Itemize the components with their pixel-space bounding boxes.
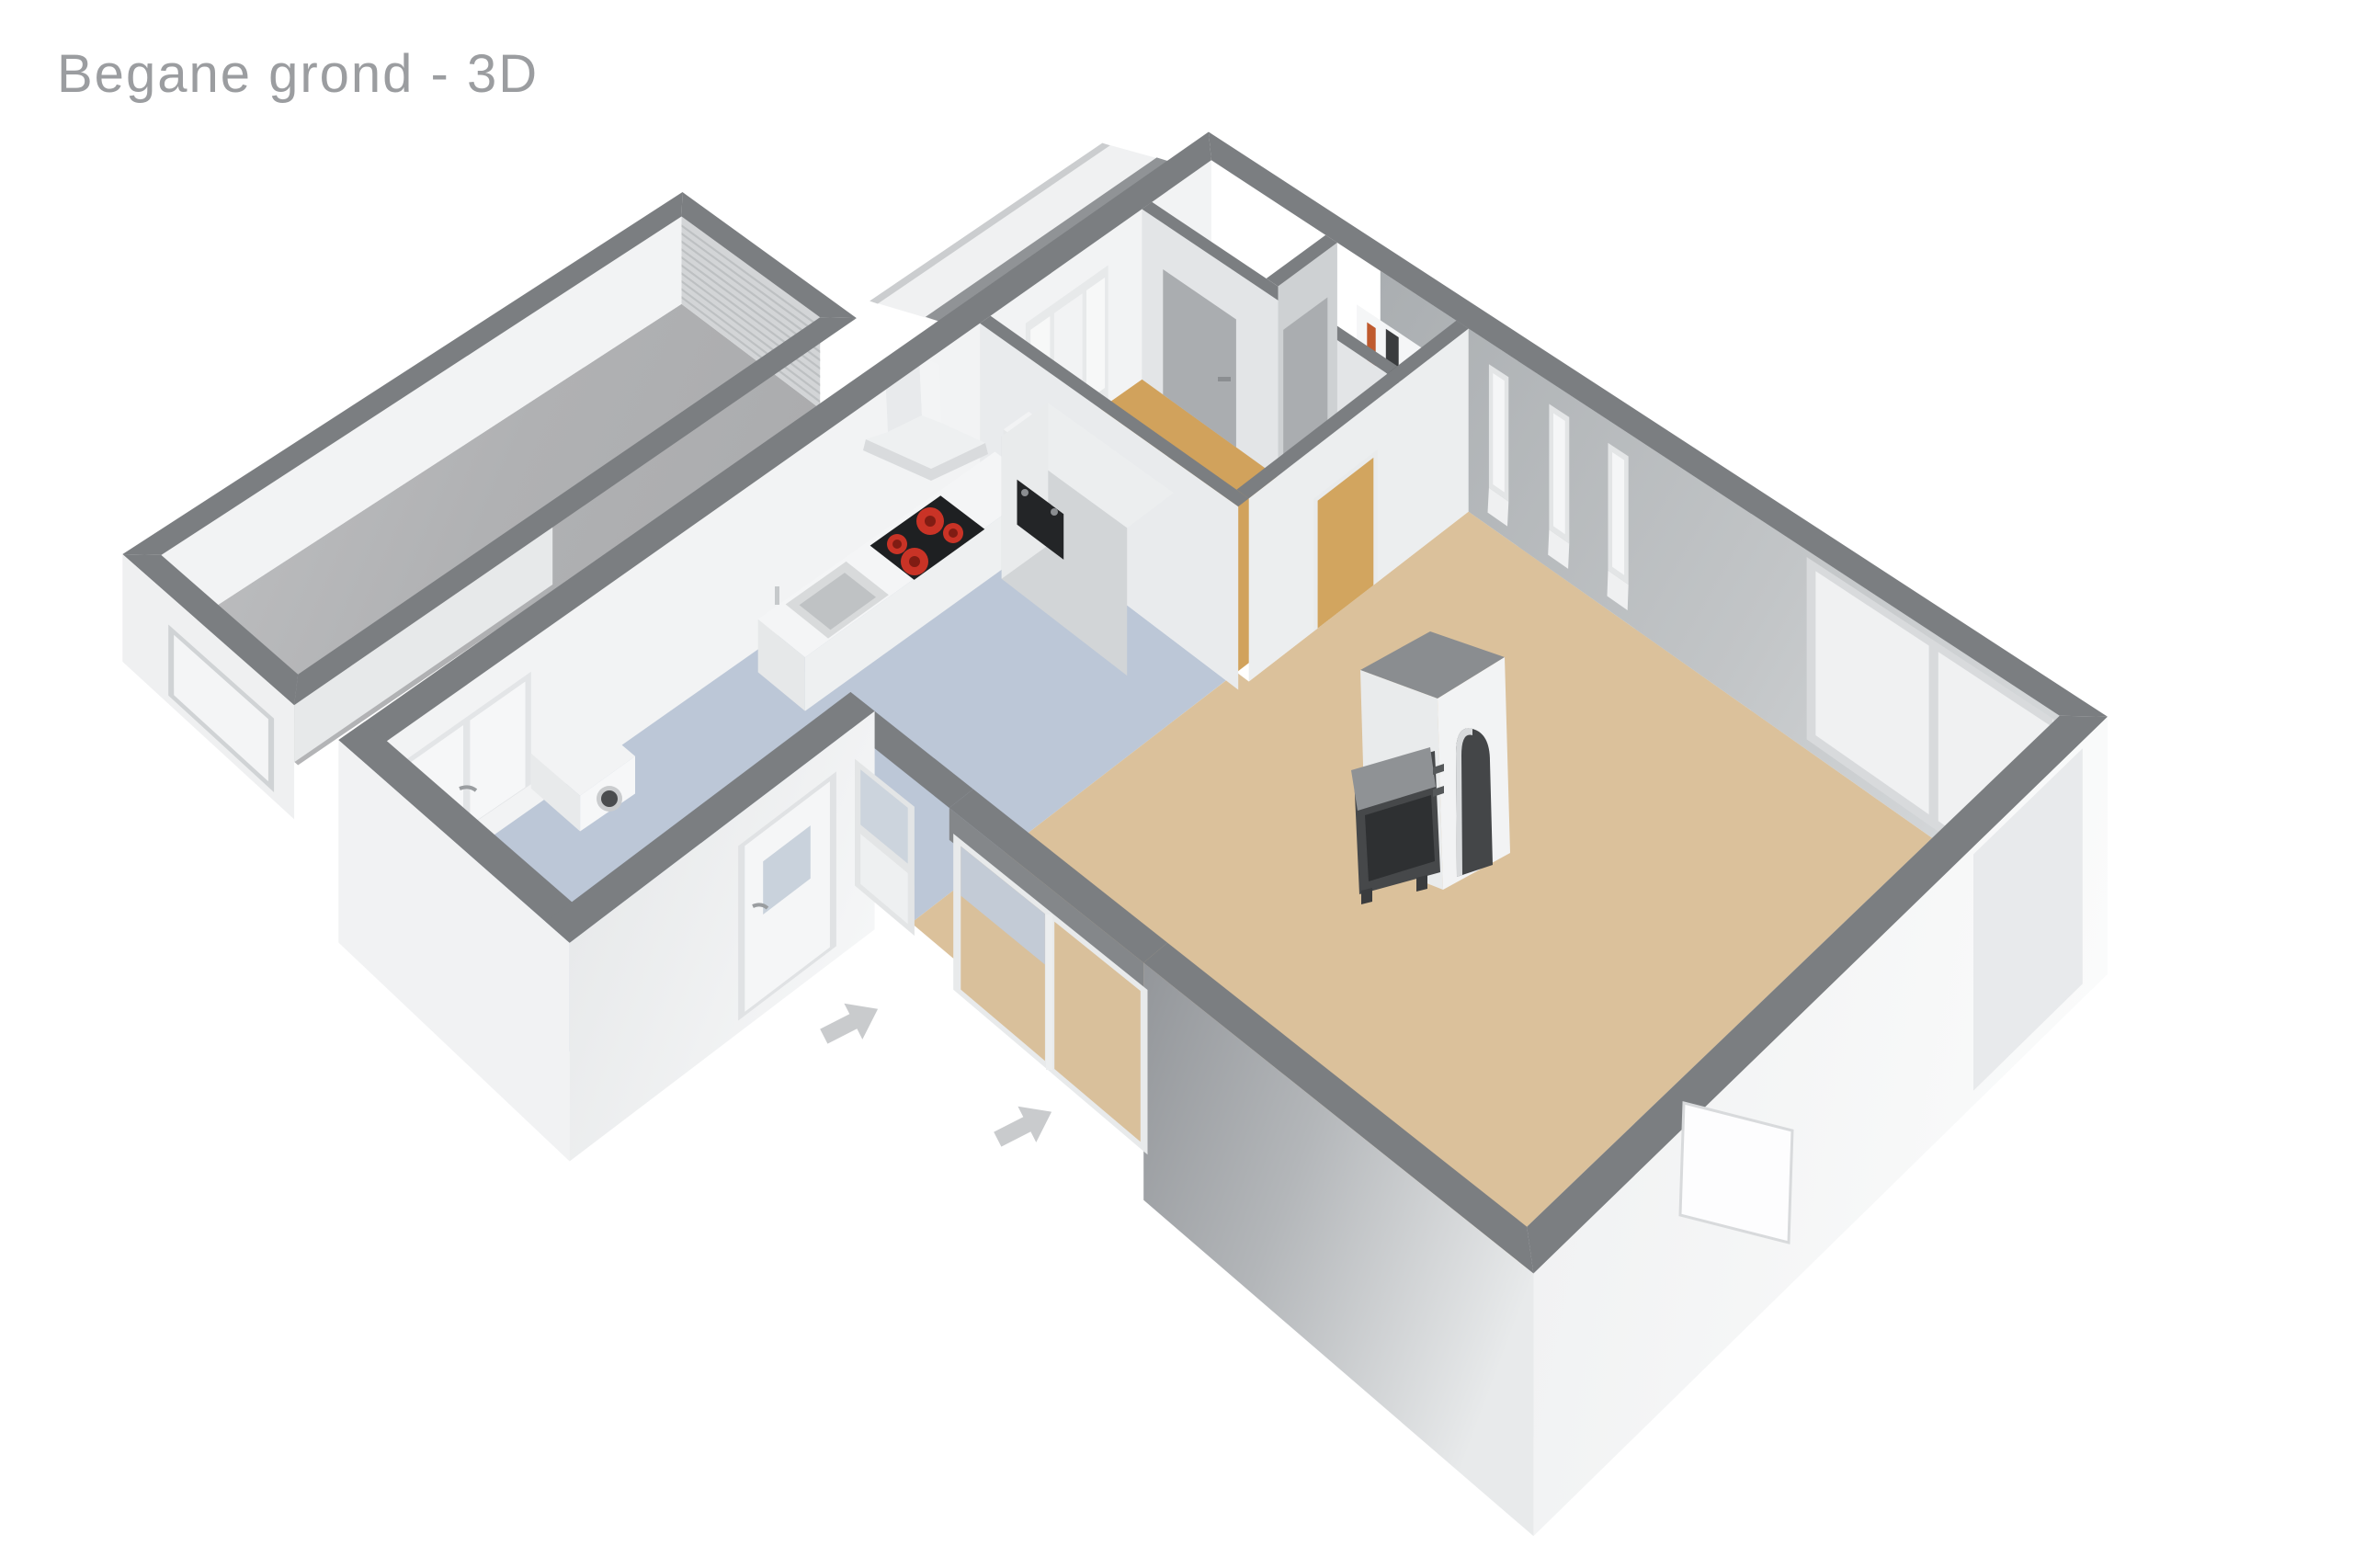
- svg-text:Begane grond - 3D: Begane grond - 3D: [57, 44, 539, 104]
